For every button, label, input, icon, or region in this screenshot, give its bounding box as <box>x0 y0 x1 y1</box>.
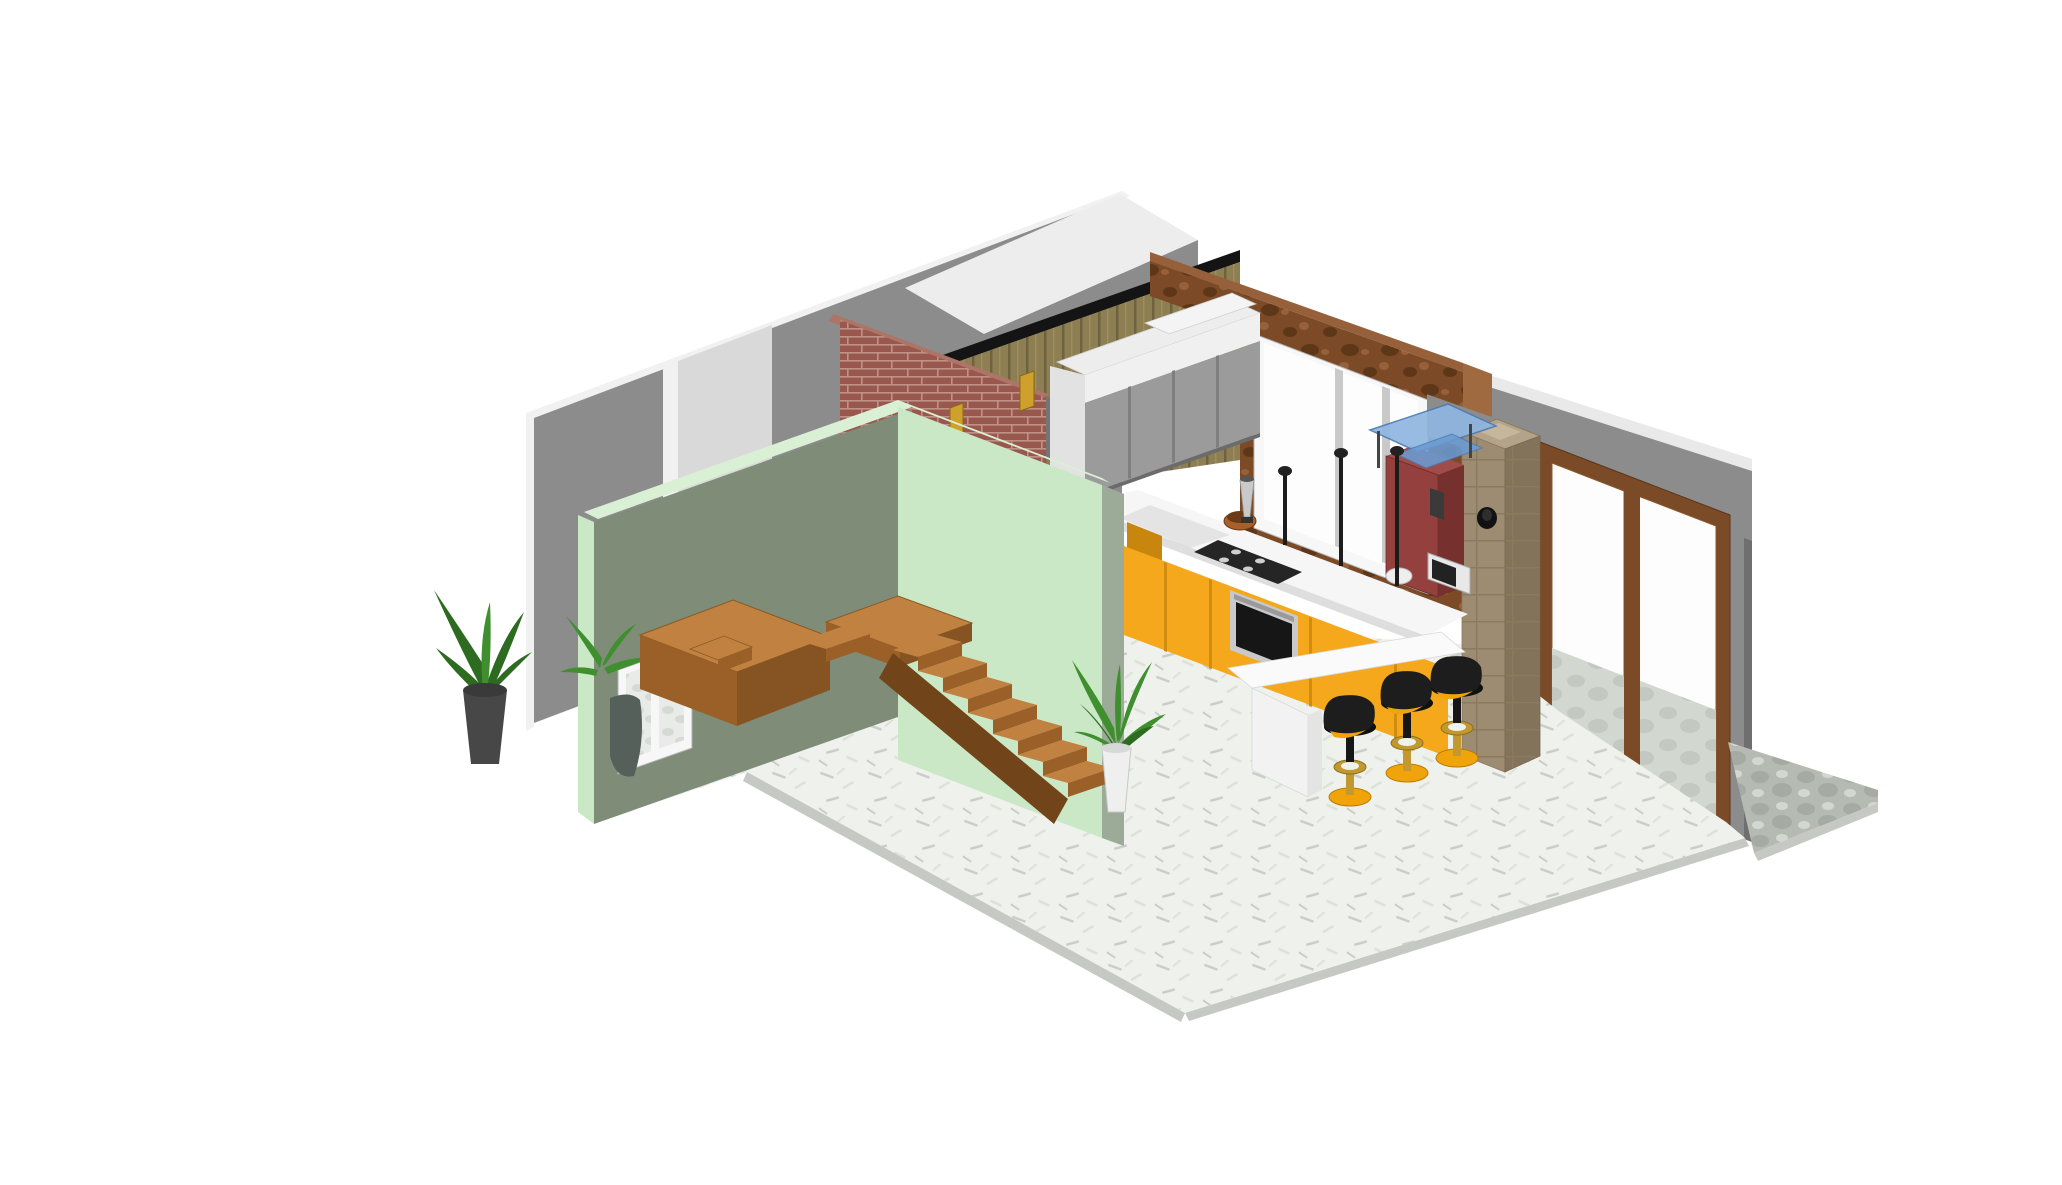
isometric-scene-svg <box>0 0 2062 1185</box>
sliding-door-center-stile <box>1624 489 1640 798</box>
blender-lid <box>1240 476 1254 482</box>
burner-4 <box>1243 567 1253 572</box>
window-curtain <box>610 694 642 776</box>
red-cabinet-hanging-tool <box>1430 488 1444 520</box>
brick-door-handle-2 <box>1020 371 1034 411</box>
stool-3-footring-hole <box>1448 723 1466 731</box>
burner-2 <box>1255 559 1265 564</box>
faucet-fixture-2 <box>1339 457 1343 566</box>
stool-2-seat <box>1381 671 1432 710</box>
awning-post-2 <box>1469 424 1472 458</box>
faucet-fixture-1 <box>1283 475 1287 545</box>
upper-cabinet-seam-2 <box>1172 370 1175 463</box>
floor-plant-pot-top <box>1101 743 1131 753</box>
tile-column-face-right <box>1505 436 1540 772</box>
stool-1-seat <box>1324 695 1375 734</box>
tile-column-face-left <box>1462 432 1505 772</box>
burner-1 <box>1231 550 1241 555</box>
bar-counter-leg-side <box>1308 709 1322 797</box>
faucet-fixture-1-head <box>1278 466 1292 476</box>
blender-base <box>1241 517 1253 523</box>
faucet-fixture-3 <box>1395 455 1399 586</box>
left-wall-left-edge <box>526 413 534 731</box>
stool-2-footring-hole <box>1398 738 1416 746</box>
awning-post-1 <box>1377 431 1380 468</box>
upper-cabinet-seam-3 <box>1216 355 1219 448</box>
faucet-fixture-2-head <box>1334 448 1348 458</box>
plant-behind-wall-pot-top <box>463 683 507 697</box>
stool-1-footring-hole <box>1341 762 1359 770</box>
cabinet-seam-2 <box>1209 579 1212 669</box>
cabinet-seam-1 <box>1164 562 1167 652</box>
stool-3-seat <box>1431 656 1482 695</box>
burner-3 <box>1219 558 1229 563</box>
rendered-3d-view <box>0 0 2062 1185</box>
column-black-disc-inner <box>1482 509 1492 521</box>
faucet-fixture-3-head <box>1390 446 1404 456</box>
upper-cabinet-seam-1 <box>1128 386 1131 479</box>
